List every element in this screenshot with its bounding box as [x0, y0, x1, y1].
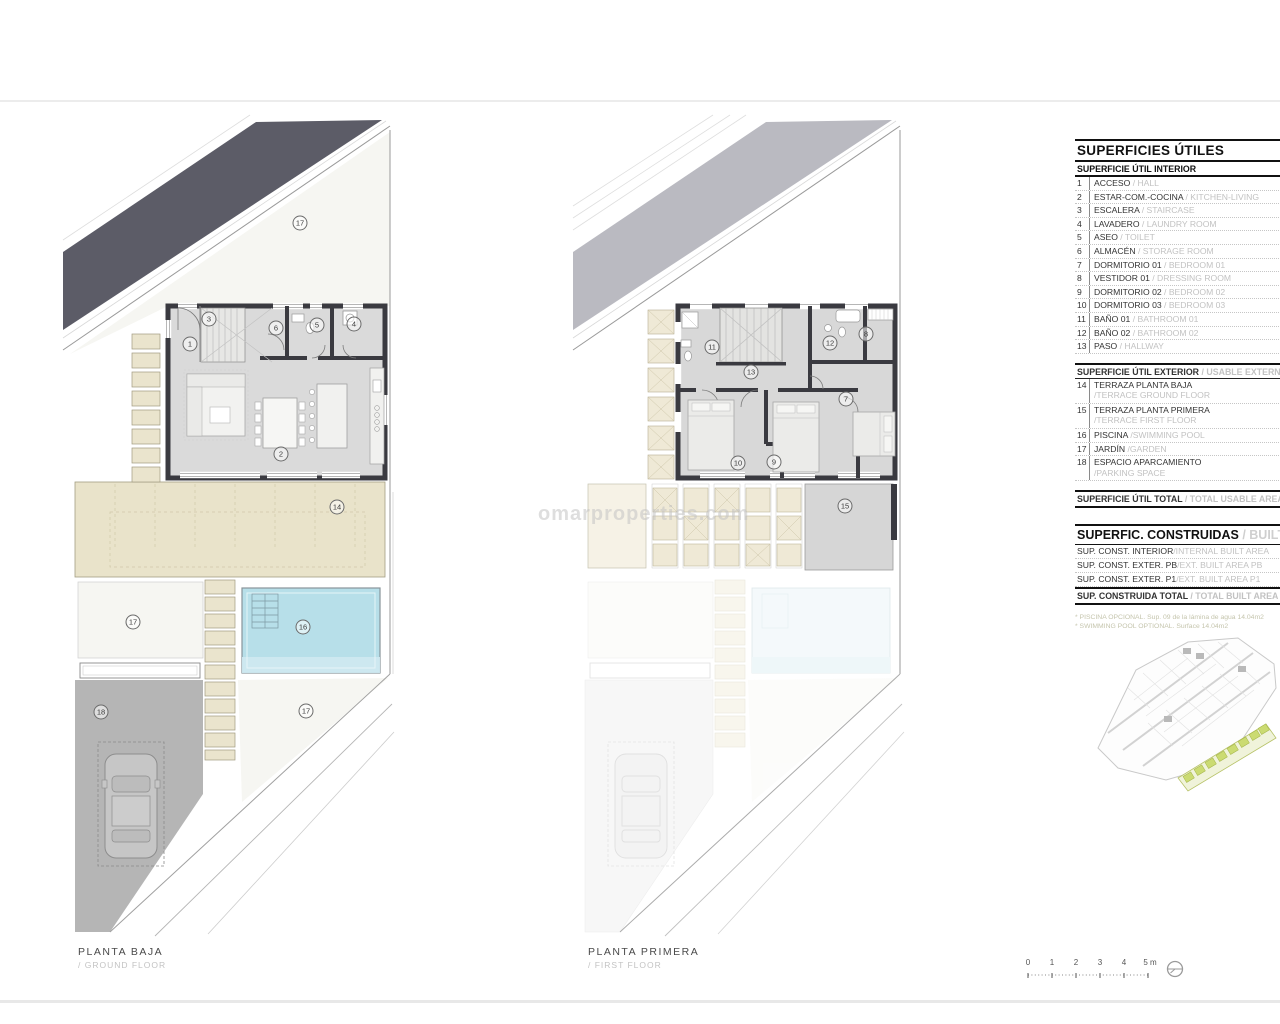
first-floor-title: PLANTA PRIMERA: [588, 946, 699, 958]
pergola-zone: [588, 484, 897, 570]
sheet-bottom-rule: [0, 1000, 1280, 1003]
legend-row-name: PASO: [1094, 341, 1117, 351]
legend-row-en: / BATHROOM 02: [1133, 328, 1199, 338]
legend-row-en: / LAUNDRY ROOM: [1142, 219, 1217, 229]
floorplan-sheet: { "watermark": "omarproperties.com", "pl…: [0, 0, 1280, 1024]
legend-row-en: / BATHROOM 01: [1133, 314, 1199, 324]
legend-row-num: 6: [1075, 245, 1090, 258]
car-topview: [102, 754, 160, 858]
swimming-pool: [242, 588, 380, 673]
room-badge: 13: [744, 365, 759, 380]
legend-row-en: / BEDROOM 02: [1164, 287, 1225, 297]
legend-row-num: 4: [1075, 218, 1090, 231]
legend-row-num: 3: [1075, 204, 1090, 217]
legend-exterior-header: SUPERFICIE ÚTIL EXTERIOR / USABLE EXTERN…: [1075, 363, 1280, 379]
legend-row-num: 12: [1075, 327, 1090, 340]
legend-row: 10DORMITORIO 03 / BEDROOM 03: [1075, 299, 1280, 313]
legend-row-en: / DRESSING ROOM: [1152, 273, 1231, 283]
legend-row-en: / TOILET: [1120, 232, 1155, 242]
legend-row: 7DORMITORIO 01 / BEDROOM 01: [1075, 259, 1280, 273]
room-badge: 3: [202, 312, 217, 327]
terrace-first: [805, 484, 893, 570]
legend-row-name: BAÑO 02: [1094, 328, 1130, 338]
legend-row-num: 1: [1075, 177, 1090, 190]
legend-row: 12BAÑO 02 / BATHROOM 02: [1075, 327, 1280, 341]
legend-row-name: ESTAR-COM.-COCINA: [1094, 192, 1183, 202]
room-badge: 14: [330, 500, 345, 515]
legend-row-name: BAÑO 01: [1094, 314, 1130, 324]
legend-row-en: / HALL: [1133, 178, 1159, 188]
room-badge: 17: [299, 704, 314, 719]
room-badge: 8: [859, 327, 874, 342]
garden-mid: [78, 582, 203, 658]
ground-floor-subtitle: / GROUND FLOOR: [78, 960, 166, 970]
site-plan-minimap: [1088, 628, 1280, 796]
room-badge: 16: [296, 620, 311, 635]
room-badge: 11: [705, 340, 720, 355]
legend-row: 5ASEO / TOILET: [1075, 231, 1280, 245]
legend-interior-header: SUPERFICIE ÚTIL INTERIOR: [1075, 162, 1280, 177]
scale-tick: 3: [1098, 958, 1102, 967]
legend-row: 16PISCINA /SWIMMING POOL: [1075, 429, 1280, 443]
legend-row-name: DORMITORIO 02: [1094, 287, 1162, 297]
legend-row-en: / BEDROOM 03: [1164, 300, 1225, 310]
scale-tick: 1: [1050, 958, 1054, 967]
legend-row-en: / STORAGE ROOM: [1138, 246, 1214, 256]
legend-built-row: SUP. CONST. INTERIOR/INTERNAL BUILT AREA: [1075, 545, 1280, 559]
legend-row-name: TERRAZA PLANTA PRIMERA: [1094, 405, 1210, 415]
legend-row-num: 17: [1075, 443, 1090, 456]
scale-tick: 2: [1074, 958, 1078, 967]
legend-usable-total: SUPERFICIE ÚTIL TOTAL / TOTAL USABLE ARE…: [1075, 490, 1280, 508]
legend-row-name: DORMITORIO 03: [1094, 300, 1162, 310]
legend-built-title: SUPERFIC. CONSTRUIDAS / BUILT AREA: [1075, 524, 1280, 545]
legend-row-num: 10: [1075, 299, 1090, 312]
legend-row-name: VESTIDOR 01: [1094, 273, 1150, 283]
legend-row-num: 8: [1075, 272, 1090, 285]
ground-floor-plan: [60, 112, 396, 940]
legend-row-num: 15: [1075, 404, 1090, 428]
ghost-ground-elements: [585, 580, 898, 932]
scale-tick: 4: [1122, 958, 1126, 967]
legend-built-row: SUP. CONST. EXTER. PB/EXT. BUILT AREA PB: [1075, 559, 1280, 573]
legend-row-en: / HALLWAY: [1120, 341, 1164, 351]
stairwell: [716, 308, 786, 366]
legend-row-en: / BEDROOM 01: [1164, 260, 1225, 270]
pergola-slats: [652, 484, 802, 568]
legend-row-num: 5: [1075, 231, 1090, 244]
room-badge: 2: [274, 447, 289, 462]
legend-row-num: 16: [1075, 429, 1090, 442]
legend-row-name: ASEO: [1094, 232, 1118, 242]
legend-row-name: ESPACIO APARCAMIENTO: [1094, 457, 1201, 467]
legend-row-num: 2: [1075, 191, 1090, 204]
louver-strip: [648, 310, 674, 479]
legend-row-en: /SWIMMING POOL: [1130, 430, 1204, 440]
legend-row-name: DORMITORIO 01: [1094, 260, 1162, 270]
legend-row: 13PASO / HALLWAY: [1075, 340, 1280, 354]
room-badge: 9: [767, 455, 782, 470]
legend-built-row: SUP. CONST. EXTER. P1/EXT. BUILT AREA P1: [1075, 573, 1280, 587]
legend-row-num: 7: [1075, 259, 1090, 272]
room-badge: 12: [823, 336, 838, 351]
legend-row-num: 9: [1075, 286, 1090, 299]
legend-row-name: ESCALERA: [1094, 205, 1139, 215]
room-badge: 15: [838, 499, 853, 514]
legend-row-en: / STAIRCASE: [1142, 205, 1195, 215]
legend-footnotes: * PISCINA OPCIONAL. Sup. 09 de la lámina…: [1075, 613, 1280, 631]
garden-steps: [205, 580, 235, 679]
planter: [80, 663, 200, 678]
room-badge: 6: [269, 321, 284, 336]
minimap-boundary: [1098, 638, 1276, 780]
legend-title: SUPERFICIES ÚTILES: [1075, 139, 1280, 162]
room-badge: 17: [126, 615, 141, 630]
legend-row-en: /TERRACE FIRST FLOOR: [1094, 416, 1280, 428]
lower-steps: [205, 682, 235, 760]
room-badge: 5: [310, 318, 325, 333]
ground-floor-title: PLANTA BAJA: [78, 946, 163, 958]
room-badge: 18: [94, 705, 109, 720]
legend-row-en: / KITCHEN-LIVING: [1186, 192, 1260, 202]
legend-row: 14TERRAZA PLANTA BAJA/TERRACE GROUND FLO…: [1075, 379, 1280, 404]
legend-row-name: LAVADERO: [1094, 219, 1140, 229]
legend-row-en: /GARDEN: [1127, 444, 1166, 454]
legend-row-name: TERRAZA PLANTA BAJA: [1094, 380, 1192, 390]
sheet-top-rule: [0, 100, 1280, 102]
legend-row: 15TERRAZA PLANTA PRIMERA/TERRACE FIRST F…: [1075, 404, 1280, 429]
room-badge: 1: [183, 337, 198, 352]
legend-panel: SUPERFICIES ÚTILES SUPERFICIE ÚTIL INTER…: [1075, 139, 1280, 631]
room-badge: 4: [347, 317, 362, 332]
legend-row-en: /PARKING SPACE: [1094, 469, 1280, 481]
legend-row-name: ACCESO: [1094, 178, 1130, 188]
legend-row: 17JARDÍN /GARDEN: [1075, 443, 1280, 457]
footnote: * SWIMMING POOL OPTIONAL. Surface 14.04m…: [1075, 622, 1280, 631]
legend-row-num: 18: [1075, 456, 1090, 480]
scale-rule: [1020, 970, 1160, 980]
legend-row: 2ESTAR-COM.-COCINA / KITCHEN-LIVING: [1075, 191, 1280, 205]
legend-row: 8VESTIDOR 01 / DRESSING ROOM: [1075, 272, 1280, 286]
legend-row: 3ESCALERA / STAIRCASE: [1075, 204, 1280, 218]
room-badge: 10: [731, 456, 746, 471]
legend-row-name: ALMACÉN: [1094, 246, 1136, 256]
scale-tick: 0: [1026, 958, 1030, 967]
legend-built-total: SUP. CONSTRUIDA TOTAL / TOTAL BUILT AREA: [1075, 587, 1280, 605]
watermark: omarproperties.com: [538, 503, 749, 526]
legend-row-num: 11: [1075, 313, 1090, 326]
legend-row: 4LAVADERO / LAUNDRY ROOM: [1075, 218, 1280, 232]
first-floor-plan: [570, 112, 906, 940]
legend-row-name: JARDÍN: [1094, 444, 1125, 454]
scale-tick: 5 m: [1143, 958, 1156, 967]
road-band-light: [573, 120, 892, 330]
legend-row: 6ALMACÉN / STORAGE ROOM: [1075, 245, 1280, 259]
legend-row: 1ACCESO / HALL: [1075, 177, 1280, 191]
north-indicator-icon: [1164, 958, 1186, 980]
legend-row: 9DORMITORIO 02 / BEDROOM 02: [1075, 286, 1280, 300]
footnote: * PISCINA OPCIONAL. Sup. 09 de la lámina…: [1075, 613, 1280, 622]
legend-row-en: /TERRACE GROUND FLOOR: [1094, 391, 1280, 403]
first-floor-subtitle: / FIRST FLOOR: [588, 960, 662, 970]
legend-row: 11BAÑO 01 / BATHROOM 01: [1075, 313, 1280, 327]
side-steps: [132, 334, 160, 482]
legend-row-num: 14: [1075, 379, 1090, 403]
legend-row-num: 13: [1075, 340, 1090, 353]
room-badge: 17: [293, 216, 308, 231]
legend-row-name: PISCINA: [1094, 430, 1128, 440]
room-badge: 7: [839, 392, 854, 407]
terrace-ground: [75, 482, 385, 577]
legend-row: 18ESPACIO APARCAMIENTO/PARKING SPACE: [1075, 456, 1280, 481]
